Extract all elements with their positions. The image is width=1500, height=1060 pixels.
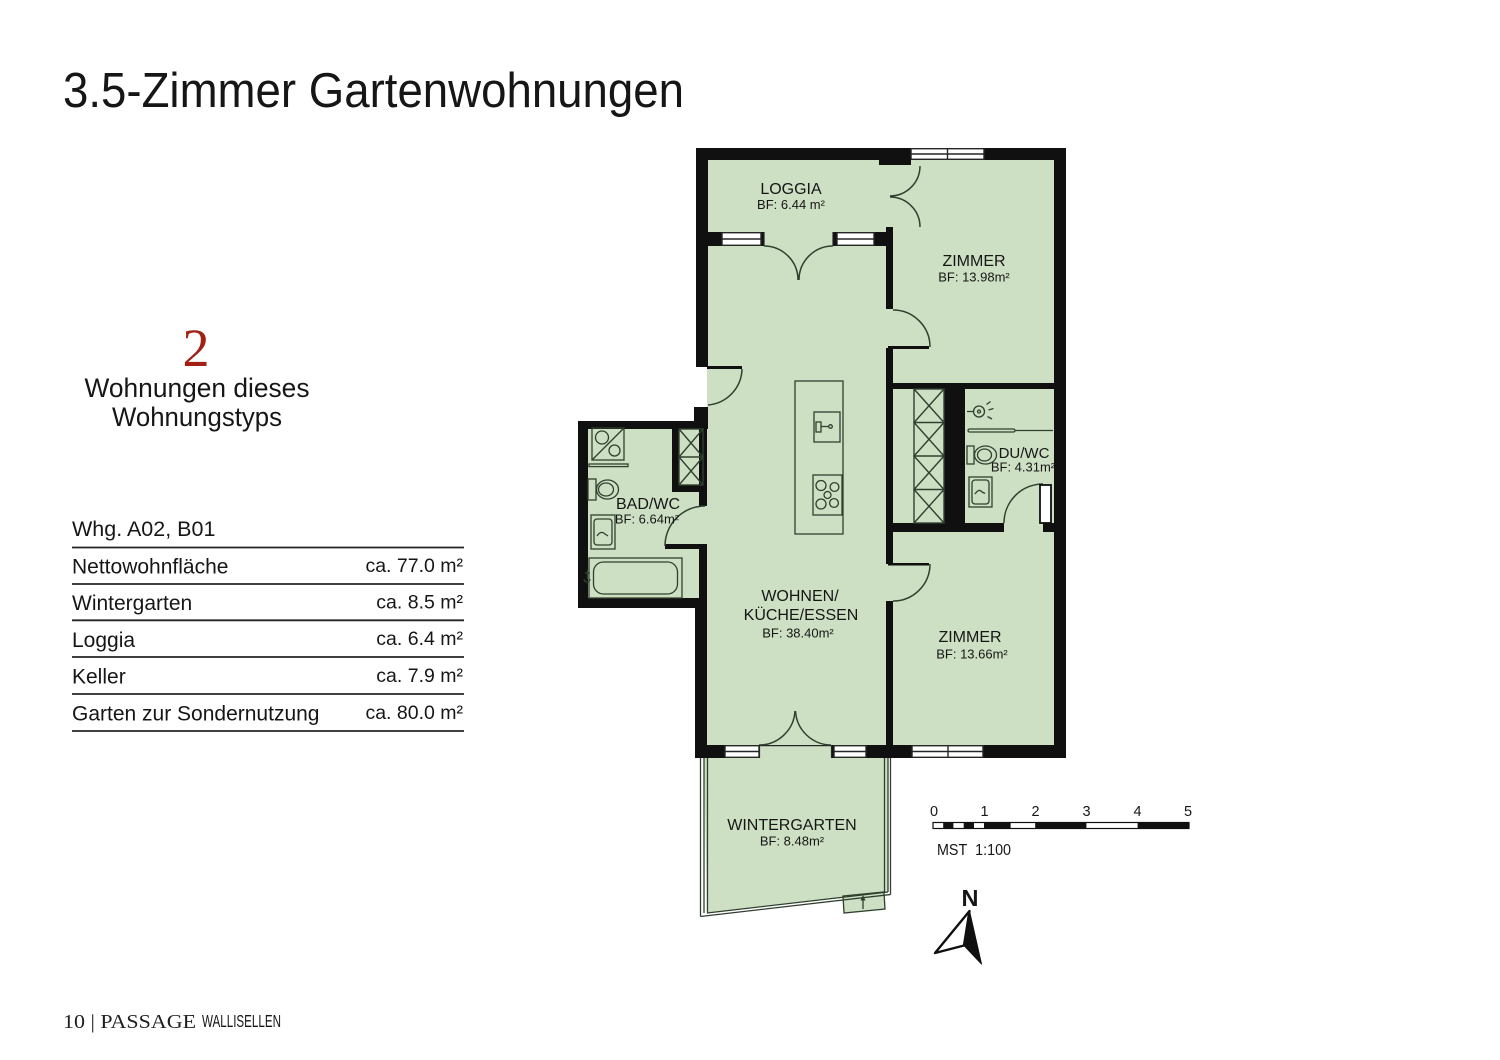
svg-text:BF: 13.98m²: BF: 13.98m² (938, 270, 1010, 285)
svg-text:WOHNEN/: WOHNEN/ (761, 588, 839, 605)
svg-text:Garten zur Sondernutzung: Garten zur Sondernutzung (72, 703, 320, 726)
svg-text:BF: 13.66m²: BF: 13.66m² (936, 647, 1008, 662)
svg-text:ca. 7.9 m²: ca. 7.9 m² (376, 665, 463, 687)
svg-text:2: 2 (183, 318, 210, 378)
svg-text:ca. 6.4 m²: ca. 6.4 m² (376, 628, 463, 650)
svg-text:5: 5 (1184, 804, 1192, 820)
svg-text:BF: 38.40m²: BF: 38.40m² (762, 626, 834, 641)
svg-text:0: 0 (930, 804, 938, 820)
svg-text:ca. 8.5 m²: ca. 8.5 m² (376, 592, 463, 614)
svg-text:Loggia: Loggia (72, 629, 135, 652)
svg-text:3.5-Zimmer Gartenwohnungen: 3.5-Zimmer Gartenwohnungen (63, 64, 684, 118)
svg-text:BF: 6.44 m²: BF: 6.44 m² (757, 197, 826, 212)
svg-text:10 | PASSAGE: 10 | PASSAGE (63, 1011, 196, 1033)
svg-text:2: 2 (1031, 804, 1039, 820)
svg-text:LOGGIA: LOGGIA (760, 181, 822, 198)
svg-text:KÜCHE/ESSEN: KÜCHE/ESSEN (744, 606, 859, 624)
svg-text:BF: 6.64m²: BF: 6.64m² (615, 512, 680, 527)
svg-text:Whg. A02, B01: Whg. A02, B01 (72, 517, 215, 541)
svg-text:N: N (962, 885, 979, 911)
svg-text:BF: 4.31m²: BF: 4.31m² (991, 460, 1056, 475)
svg-text:ZIMMER: ZIMMER (942, 253, 1005, 270)
svg-text:Keller: Keller (72, 666, 126, 689)
svg-text:ZIMMER: ZIMMER (938, 629, 1001, 646)
svg-text:Wohnungstyps: Wohnungstyps (112, 402, 282, 432)
svg-text:4: 4 (1133, 804, 1141, 820)
svg-text:ca. 80.0 m²: ca. 80.0 m² (365, 702, 463, 724)
svg-text:WINTERGARTEN: WINTERGARTEN (727, 817, 856, 834)
svg-text:ca. 77.0 m²: ca. 77.0 m² (365, 555, 463, 577)
svg-text:MST 1:100: MST 1:100 (937, 842, 1011, 859)
svg-text:1: 1 (980, 804, 988, 820)
svg-text:BAD/WC: BAD/WC (616, 496, 680, 513)
svg-text:Wohnungen dieses: Wohnungen dieses (85, 373, 310, 403)
svg-text:3: 3 (1082, 804, 1090, 820)
svg-text:BF: 8.48m²: BF: 8.48m² (760, 834, 825, 849)
svg-text:Nettowohnfläche: Nettowohnfläche (72, 556, 228, 579)
svg-text:Wintergarten: Wintergarten (72, 592, 192, 615)
svg-text:WALLISELLEN: WALLISELLEN (202, 1011, 281, 1031)
